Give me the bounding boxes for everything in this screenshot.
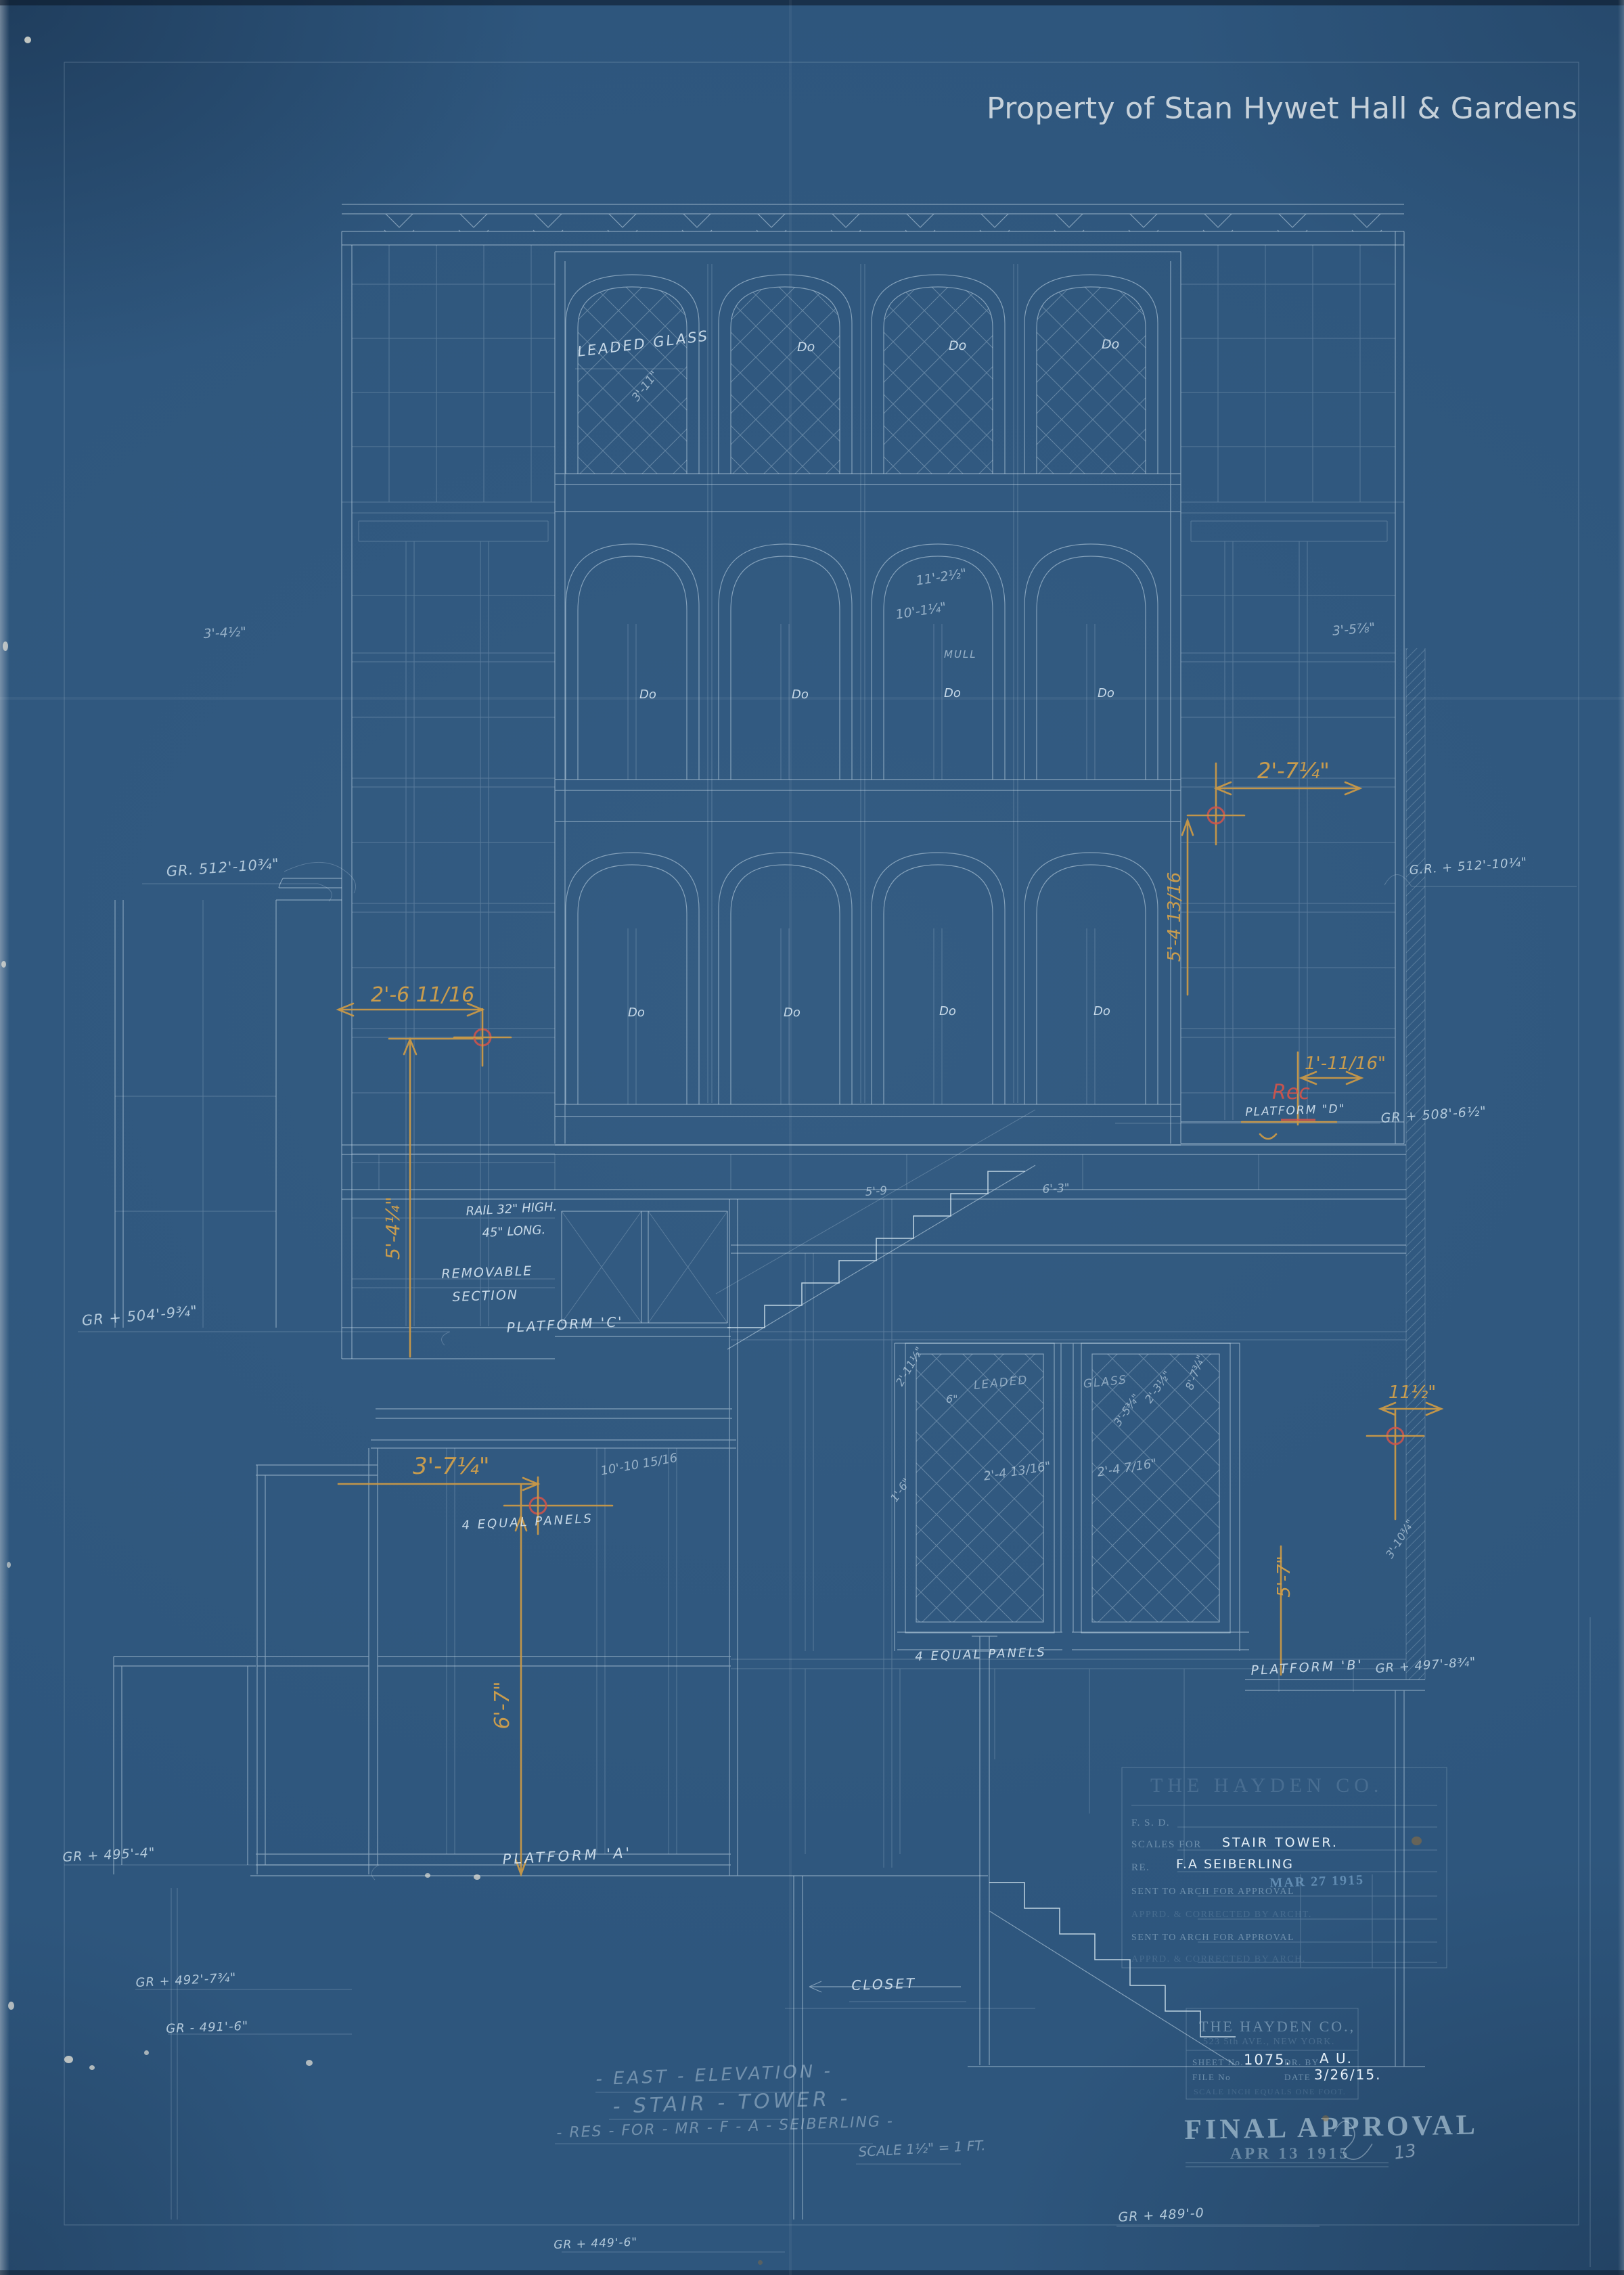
paper-speck xyxy=(3,641,8,651)
paper-stain xyxy=(1412,1837,1422,1845)
stampbox-drby-value: A U. xyxy=(1319,2050,1353,2067)
paper-speck xyxy=(8,2002,14,2010)
titleblock-fsd: F. S. D. xyxy=(1131,1818,1170,1829)
paper-speck xyxy=(474,1874,480,1880)
svg-text:3'-7¼": 3'-7¼" xyxy=(413,1453,489,1480)
label-do-b4: Do xyxy=(1098,686,1114,700)
svg-text:2'-7¼": 2'-7¼" xyxy=(1257,758,1330,784)
svg-text:11½": 11½" xyxy=(1389,1382,1436,1403)
label-do-a2: Do xyxy=(949,338,966,353)
paper-speck xyxy=(144,2050,149,2055)
svg-text:5'-4¼": 5'-4¼" xyxy=(382,1196,404,1259)
titleblock-re-value: F.A SEIBERLING xyxy=(1176,1857,1294,1872)
titleblock-re: RE. xyxy=(1131,1862,1150,1874)
label-mull: MULL xyxy=(944,648,977,660)
dim-group-right-lower: 11½" xyxy=(1367,1382,1441,1519)
dim-6-3: 6'-3" xyxy=(1042,1181,1070,1196)
paper-speck xyxy=(7,1562,11,1568)
dim-5-9: 5'-9 xyxy=(865,1184,888,1199)
svg-text:1'-11/16": 1'-11/16" xyxy=(1305,1054,1386,1074)
label-closet: CLOSET xyxy=(851,1975,917,1994)
final-approval-date: APR 13 1915 xyxy=(1230,2145,1350,2163)
paper-speck xyxy=(89,2065,95,2070)
titleblock-apprd2: APPRD. & CORRECTED BY ARCH. xyxy=(1131,1954,1306,1965)
stampbox-scale-line: SCALE INCH EQUALS ONE FOOT. xyxy=(1194,2087,1346,2097)
paper-speck xyxy=(425,1873,430,1878)
label-do-c2: Do xyxy=(784,1006,800,1020)
approval-mark: 13 xyxy=(1393,2140,1418,2163)
grade-mark-491: GR - 491'-6" xyxy=(166,2019,249,2036)
svg-text:5'-4 13/16: 5'-4 13/16 xyxy=(1165,872,1185,962)
paper-stain xyxy=(758,2260,763,2265)
svg-text:6'-7": 6'-7" xyxy=(491,1681,514,1729)
label-do-b3: Do xyxy=(944,686,961,700)
stampbox-file-label: FILE No xyxy=(1192,2072,1231,2083)
label-do-b2: Do xyxy=(792,688,809,702)
svg-text:Rec: Rec xyxy=(1272,1081,1310,1104)
stampbox-sheet-label: SHEET No. xyxy=(1192,2057,1244,2068)
label-do-c1: Do xyxy=(628,1006,645,1020)
paper-speck xyxy=(64,2056,73,2063)
label-do-b1: Do xyxy=(639,688,656,702)
blueprint-sheet: { "watermark": "Property of Stan Hywet H… xyxy=(0,0,1624,2275)
titleblock-scales-value: STAIR TOWER. xyxy=(1222,1835,1338,1850)
stampbox-company: THE HAYDEN CO., xyxy=(1199,2018,1355,2035)
titleblock-scales-for: SCALES FOR xyxy=(1131,1839,1202,1851)
titleblock-company: THE HAYDEN CO. xyxy=(1150,1774,1383,1797)
paper-speck xyxy=(1,961,6,968)
dim-group-platform-d: 1'-11/16" Rec xyxy=(1242,1052,1386,1139)
stampbox-date-value: 3/26/15. xyxy=(1314,2067,1381,2083)
note-removable-2: SECTION xyxy=(452,1288,518,1305)
paper-speck xyxy=(306,2060,313,2066)
dim-3-4-half: 3'-4½" xyxy=(203,625,246,641)
paper-stain xyxy=(1322,2115,1329,2121)
paper-speck xyxy=(24,37,31,43)
label-do-a1: Do xyxy=(797,340,815,355)
watermark: Property of Stan Hywet Hall & Gardens xyxy=(987,91,1577,126)
stampbox-date-label: DATE xyxy=(1284,2072,1311,2083)
note-removable-1: REMOVABLE xyxy=(441,1263,533,1282)
label-do-a3: Do xyxy=(1102,337,1119,352)
svg-text:5'-7": 5'-7" xyxy=(1274,1556,1294,1598)
label-do-c4: Do xyxy=(1093,1004,1110,1018)
dim-group-platform-b: 5'-7" xyxy=(1274,1546,1294,1675)
titleblock-sent2: SENT TO ARCH FOR APPROVAL xyxy=(1131,1933,1294,1943)
final-approval-stamp: FINAL APPROVAL xyxy=(1184,2109,1479,2146)
stampbox-address: 523 5th AVE., NEW YORK. xyxy=(1203,2037,1335,2048)
label-do-c3: Do xyxy=(939,1004,956,1018)
svg-text:2'-6 11/16: 2'-6 11/16 xyxy=(371,983,474,1007)
titleblock-apprd1: APPRD. & CORRECTED BY ARCHT. xyxy=(1131,1910,1312,1920)
dim-6in: 6" xyxy=(946,1393,958,1405)
titleblock-sent1-date-stamp: MAR 27 1915 xyxy=(1269,1872,1364,1891)
dim-group-right-upper: 2'-7¼" 5'-4 13/16 xyxy=(1165,758,1360,995)
